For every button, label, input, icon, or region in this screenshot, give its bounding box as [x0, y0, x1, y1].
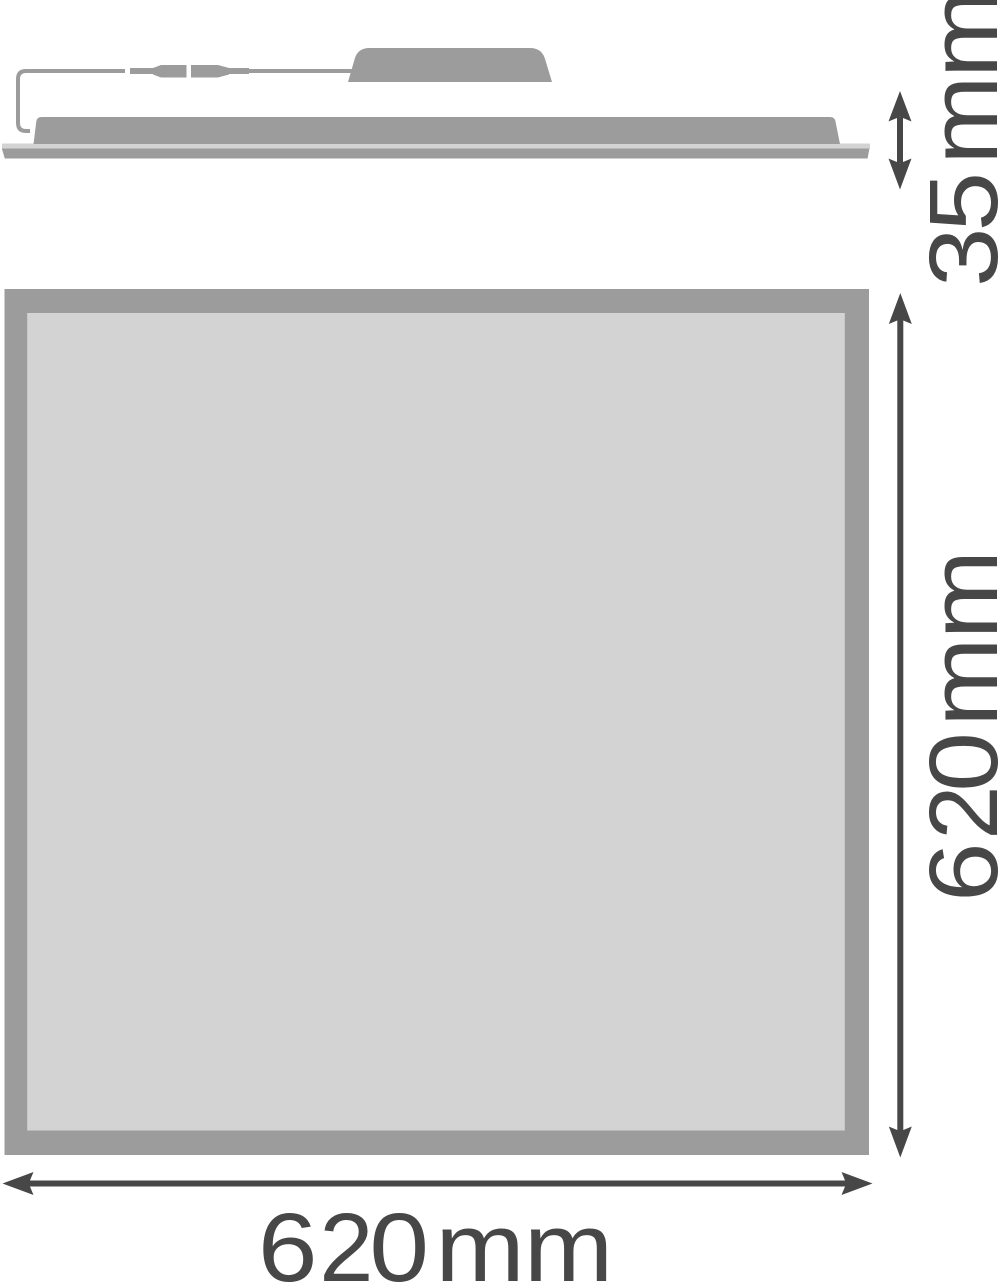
svg-text:35mm: 35mm [909, 0, 1000, 287]
svg-text:2: 2 [319, 1193, 373, 1284]
svg-text:60mm: 60mm [909, 550, 1000, 902]
svg-text:60mm: 60mm [258, 1193, 613, 1284]
svg-text:2: 2 [909, 786, 1000, 840]
